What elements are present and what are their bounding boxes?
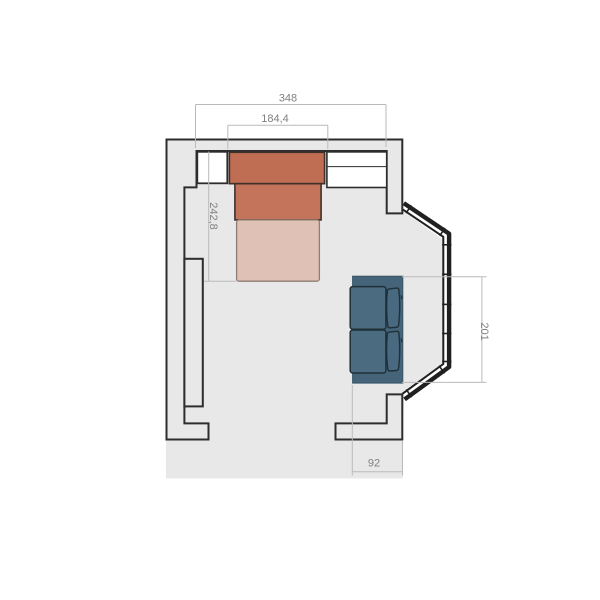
svg-text:201: 201 (478, 322, 490, 340)
svg-text:242,8: 242,8 (207, 202, 219, 230)
svg-text:92: 92 (368, 458, 380, 470)
svg-text:184,4: 184,4 (261, 113, 289, 125)
svg-text:348: 348 (279, 93, 297, 105)
